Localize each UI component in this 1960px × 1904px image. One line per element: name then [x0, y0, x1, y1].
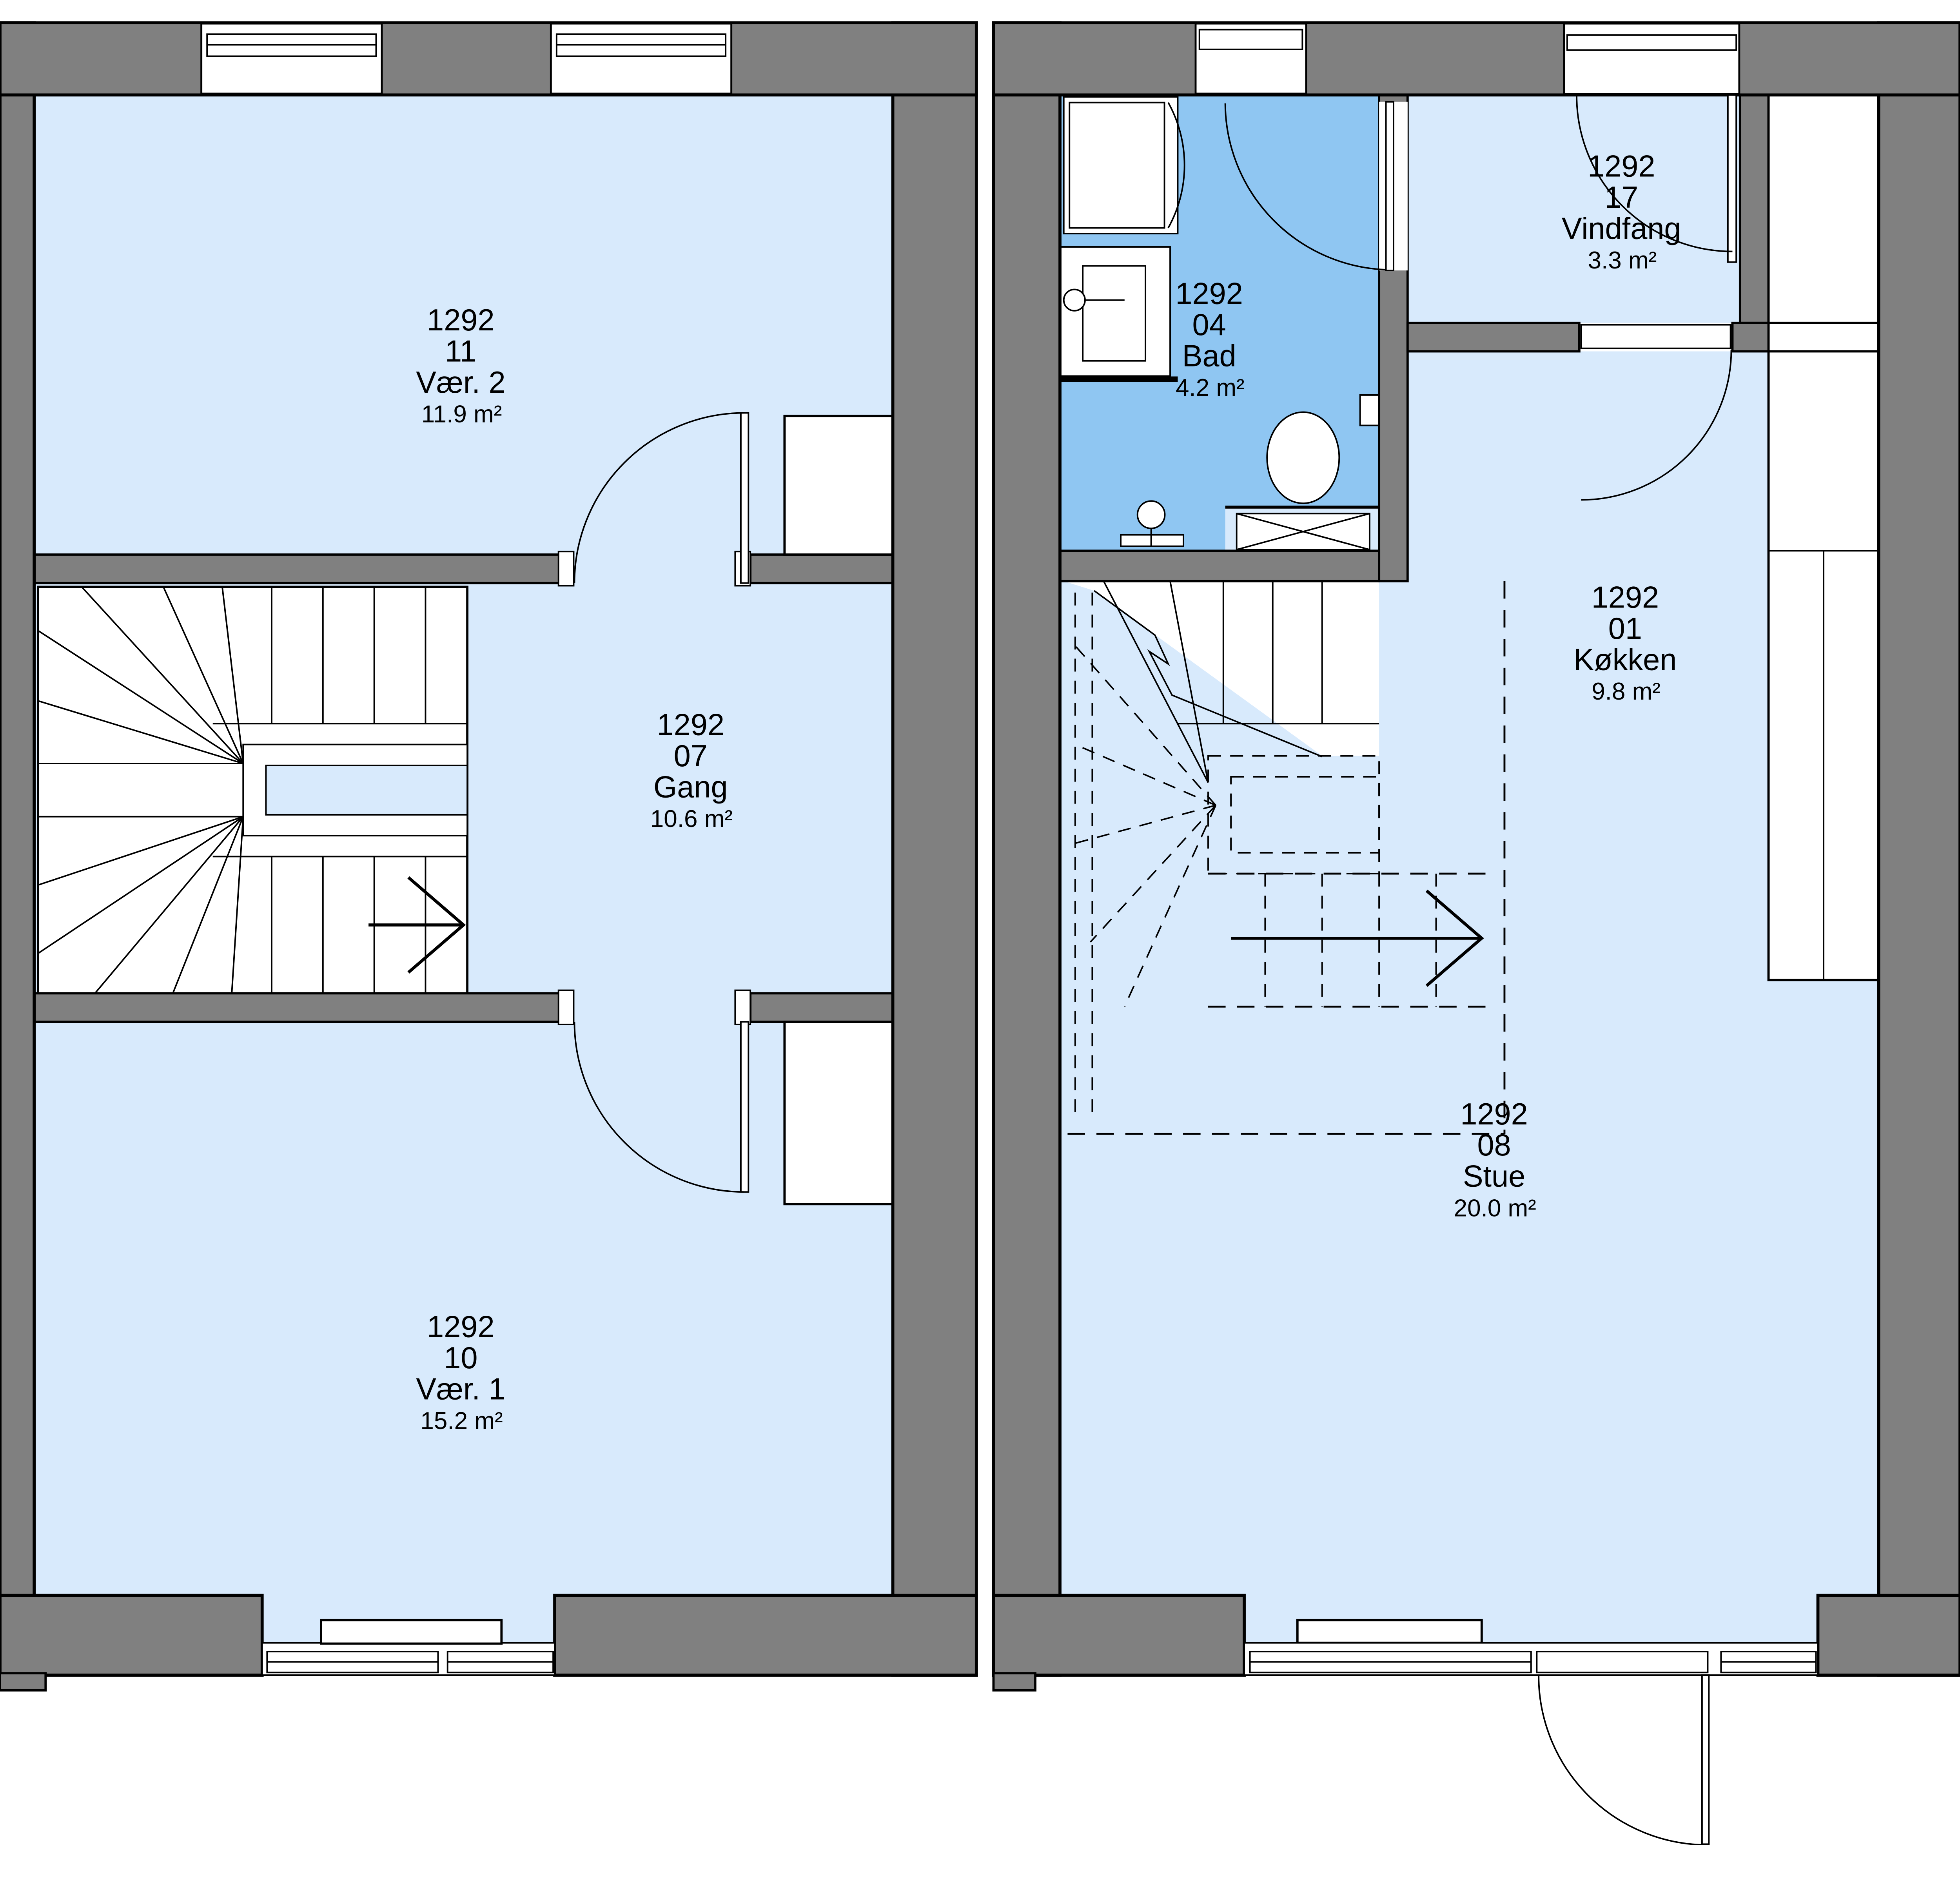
window-vaer2-left	[201, 24, 382, 94]
closet-vaer1	[784, 1022, 893, 1204]
room-label-stue: 1292 08 Stue 20.0 m²	[1454, 1097, 1536, 1222]
stair-void	[266, 765, 467, 815]
sill-vaer1	[321, 1620, 501, 1644]
wall-vindfang-koekken-right	[1732, 323, 1768, 352]
wall-top-ground	[993, 23, 1960, 95]
window-vaer1-right	[448, 1652, 553, 1672]
window-bad	[1196, 24, 1306, 94]
door-leaf-koekken	[1581, 325, 1731, 348]
door-arc-terrace	[1539, 1676, 1708, 1845]
floor-plan-drawing: 1292 11 Vær. 2 11.9 m² 1292 07 Gang 10.6…	[0, 0, 1960, 1845]
room-label-gang: 1292 07 Gang 10.6 m²	[650, 708, 733, 832]
kitchen-counter	[1769, 351, 1879, 980]
room-label-bad: 1292 04 Bad 4.2 m²	[1175, 277, 1245, 401]
terrace-door	[1537, 1652, 1709, 1845]
floor-plan-upper: 1292 11 Vær. 2 11.9 m² 1292 07 Gang 10.6…	[0, 23, 976, 1690]
floor-plan-ground: 1292 04 Bad 4.2 m² 1292 17 Vindfang 3.3 …	[993, 23, 1960, 1845]
door-jamb	[559, 990, 574, 1025]
niche-top-right	[1769, 95, 1879, 323]
room-label-vaer1: 1292 10 Vær. 1 15.2 m²	[416, 1310, 507, 1435]
wall-left	[0, 23, 34, 1675]
door-jamb	[559, 551, 574, 586]
wall-vindfang-right	[1740, 95, 1769, 323]
wall-right-party	[893, 23, 976, 1675]
room-label-vaer2: 1292 11 Vær. 2 11.9 m²	[416, 303, 507, 428]
wall-vindfang-koekken-left	[1408, 323, 1579, 352]
wall-right-ground	[1879, 23, 1960, 1675]
door-jamb	[735, 990, 750, 1025]
door-leaf-entrance	[1728, 95, 1736, 262]
door-leaf-bad	[1386, 102, 1394, 270]
window-vaer1-left	[267, 1652, 438, 1672]
door-leaf-terrace	[1702, 1675, 1709, 1844]
closet-vaer2	[784, 416, 893, 555]
floor-plan-page: 1292 11 Vær. 2 11.9 m² 1292 07 Gang 10.6…	[0, 0, 1960, 1845]
washing-machine-icon	[1064, 97, 1185, 234]
wall-bad-bottom	[1060, 551, 1379, 581]
window-vaer2-right	[551, 24, 731, 94]
window-stue-right	[1721, 1652, 1816, 1672]
stairs-upper	[38, 587, 467, 993]
door-leaf-vaer1	[741, 1022, 748, 1192]
door-leaf-vaer2	[741, 413, 748, 583]
sill-stue	[1298, 1620, 1482, 1643]
room-bad	[1060, 95, 1408, 581]
wall-top	[0, 23, 976, 95]
wall-left-ground	[993, 23, 1060, 1675]
vindfang-floor	[1408, 95, 1740, 323]
window-stue-left	[1250, 1652, 1531, 1672]
sink-icon	[1060, 247, 1170, 376]
